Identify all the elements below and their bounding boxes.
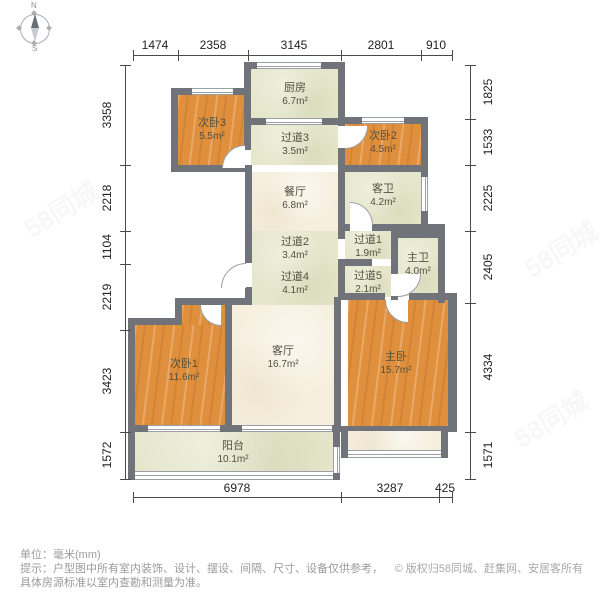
window: [192, 88, 233, 95]
wall: [175, 298, 252, 305]
room-label-guest-bath: 客卫4.2m²: [343, 183, 423, 209]
room-label-kitchen: 厨房6.7m²: [255, 82, 335, 108]
dimension-value: 2405: [481, 235, 495, 299]
dimension-value: 1533: [481, 110, 495, 174]
dimension-tick: [341, 492, 342, 503]
wall: [225, 305, 232, 425]
room-label-master-bath: 主卫4.0m²: [378, 252, 458, 278]
room-label-bedroom1: 次卧111.6m²: [144, 358, 224, 384]
room-label-hallway4: 过道44.1m²: [255, 271, 335, 297]
sliding-door: [266, 118, 322, 125]
room-label-bedroom3: 次卧35.5m²: [172, 117, 252, 143]
dimension-line-left: [125, 65, 126, 479]
dimension-tick: [133, 492, 134, 503]
wall: [372, 224, 445, 231]
dimension-value: 4334: [481, 335, 495, 399]
wall: [334, 297, 341, 432]
wall: [409, 293, 457, 300]
wall: [341, 431, 348, 458]
dimension-tick: [465, 479, 476, 480]
room-label-hallway2: 过道23.4m²: [255, 236, 335, 262]
floorplan-page: { "compass": { "north": "N", "south": "S…: [0, 0, 600, 600]
dimension-tick: [120, 432, 131, 433]
dimension-value: 1572: [100, 423, 114, 487]
dimension-tick: [465, 231, 476, 232]
dimension-tick: [120, 65, 131, 66]
dimension-tick: [465, 65, 476, 66]
dimension-value: 3358: [100, 83, 114, 147]
dimension-tick: [465, 165, 476, 166]
dimension-value: 2225: [481, 166, 495, 230]
wall: [128, 318, 135, 480]
compass-label-n: N: [31, 1, 37, 10]
wall: [441, 431, 448, 458]
entry-door: [221, 263, 246, 288]
dimension-tick: [248, 50, 249, 61]
footer-tip-line2: 具体房源标准以室内查勘和测量为准。: [20, 574, 207, 590]
wall: [245, 165, 252, 263]
footer-copyright: © 版权归58同城、赶集网、安居客所有: [395, 560, 583, 576]
dimension-tick: [120, 264, 131, 265]
room-label-dining: 餐厅6.8m²: [255, 186, 335, 212]
dimension-tick: [465, 303, 476, 304]
dimension-line-right: [470, 65, 471, 479]
dimension-value: 910: [404, 38, 468, 52]
wall: [448, 300, 457, 432]
room-label-living: 客厅16.7m²: [243, 345, 323, 371]
dimension-tick: [120, 479, 131, 480]
dimension-tick: [120, 231, 131, 232]
dimension-value: 6978: [205, 481, 269, 495]
dimension-line-top: [133, 55, 452, 56]
dimension-value: 3145: [262, 38, 326, 52]
wall: [341, 426, 448, 431]
bay-window-fill: [348, 431, 441, 452]
room-label-master-bedroom: 主卧15.7m²: [356, 351, 436, 377]
dimension-value: 1571: [481, 423, 495, 487]
dimension-value: 425: [413, 481, 477, 495]
wall: [338, 224, 350, 231]
dimension-tick: [120, 165, 131, 166]
compass-icon: N S: [12, 4, 58, 52]
wall: [128, 318, 182, 325]
dimension-value: 1474: [123, 38, 187, 52]
watermark-text: 58同城: [16, 171, 104, 245]
compass-needle-north: [31, 14, 39, 28]
wall: [338, 259, 372, 266]
dimension-value: 2219: [100, 265, 114, 329]
watermark-text: 58同城: [506, 381, 594, 455]
room-label-balcony: 阳台10.1m²: [193, 440, 273, 466]
compass-label-s: S: [32, 44, 37, 53]
dimension-tick: [341, 50, 342, 61]
compass-needle-south: [31, 28, 39, 42]
dimension-tick: [465, 432, 476, 433]
room-label-hallway3: 过道33.5m²: [255, 132, 335, 158]
dimension-value: 2358: [181, 38, 245, 52]
wall: [338, 165, 428, 172]
watermark-text: 58同城: [516, 211, 600, 285]
bay-window: [348, 450, 441, 458]
window: [148, 425, 220, 432]
dimension-tick: [465, 119, 476, 120]
dimension-tick: [120, 330, 131, 331]
window: [362, 117, 404, 124]
window: [257, 62, 321, 69]
balcony-railing: [135, 471, 333, 480]
balcony-sliding-door: [242, 425, 332, 432]
dimension-line-bottom: [133, 497, 452, 498]
dimension-value: 3423: [100, 349, 114, 413]
room-label-bedroom2: 次卧24.5m²: [343, 130, 423, 156]
window: [333, 447, 340, 473]
